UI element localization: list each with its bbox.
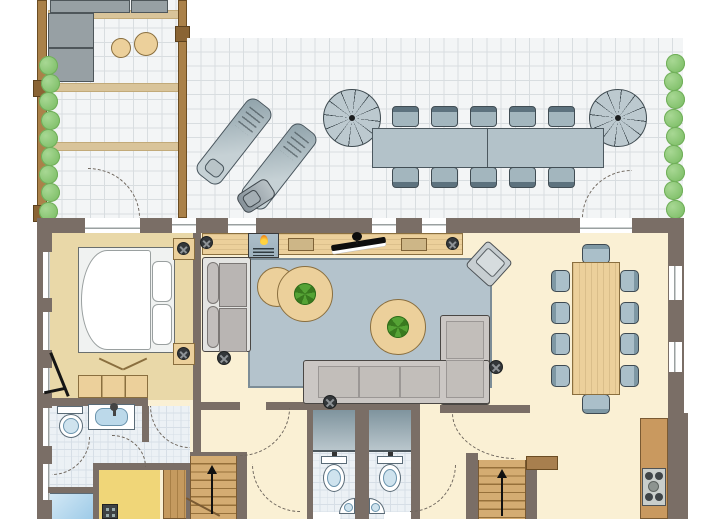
terrace-chair [431,167,458,188]
dining-chairs-left [551,270,570,400]
toilet-bowl-inner [327,469,341,487]
tv-mount-stem [356,239,358,244]
wc-door-opening [313,512,340,519]
plank-closet [163,467,188,519]
toilet-bowl-inner [383,469,397,487]
window [228,218,256,233]
bush-icon [664,145,683,164]
flame-icon [260,235,268,245]
stair-wall [237,452,247,519]
burner-icon [655,472,663,480]
mattress [81,250,151,350]
window [172,218,196,233]
sofa-cushion [400,366,440,398]
bush-icon [39,92,58,111]
door-swing-arc [582,170,632,218]
fireplace [248,233,279,258]
bush-icon [41,74,60,93]
wall-stub [37,500,52,519]
stair-wall [526,470,537,519]
toilet-tank [321,456,347,464]
lamp-icon [446,237,459,250]
hob [642,468,666,506]
lamp-icon [177,347,190,360]
speaker [288,238,314,251]
up-arrow-icon [211,468,213,514]
outdoor-dining-table [372,128,488,168]
terrace-chair [548,167,575,188]
wardrobe [78,375,148,398]
wall-stub [37,446,52,464]
bush-icon [41,111,60,130]
terrace-chairs-bottom [392,167,592,188]
floor-lamp-icon [323,395,337,409]
stair-cupboard [526,456,558,470]
bush-icon [41,147,60,166]
bush-icon [666,127,685,146]
window [372,218,396,233]
bush-icon [664,72,683,91]
exterior-wall [196,218,228,233]
door-swing-arc [252,464,300,512]
terrace-chair [392,106,419,127]
terrace-chair [431,106,458,127]
hall-wall [193,402,240,410]
door-swing-arc [150,406,190,448]
sofa-cushion [318,366,359,398]
boiler [102,504,118,519]
terrace-chair [509,106,536,127]
door-swing-arc [410,464,456,512]
lamp-icon [177,242,190,255]
floor-lamp-icon [489,360,503,374]
up-arrow-icon [501,472,503,516]
sink-basin [344,503,353,512]
outdoor-corner-sofa-back [50,0,130,13]
shower [369,410,411,452]
terrace-chair [392,167,419,188]
terrace-chair [470,106,497,127]
floor-plan [0,0,713,519]
terrace-chairs-top [392,106,592,127]
faucet-spout [113,410,116,416]
wc-door-opening [384,512,411,519]
dining-table [572,262,620,395]
bush-icon [39,129,58,148]
bush-icon [666,163,685,182]
wall-stub [37,298,52,312]
window [43,312,50,350]
pergola-beam [48,142,183,151]
sofa-seat-cushion [219,308,247,352]
pillow [152,261,172,302]
lamp-icon [200,236,213,249]
exterior-wall [396,218,422,233]
window [43,252,50,298]
terrace-door-opening [580,218,632,233]
terrace-door-opening [85,218,140,233]
shower-tub [50,493,93,519]
sofa-back-cushion [207,262,219,304]
burner-icon [648,481,659,492]
bush-icon [664,109,683,128]
terrace-chair [470,167,497,188]
window [669,266,682,300]
stair-wall [466,453,478,519]
door-swing-arc [240,408,290,456]
bush-icon [41,183,60,202]
dining-chair [551,302,570,324]
bush-icon [664,181,683,200]
flush-button [332,452,337,456]
sofa-cushion [446,360,484,398]
bush-icon [666,90,685,109]
plant-icon [294,283,316,305]
door-swing-arc [112,435,146,467]
pergola-beam [48,83,183,92]
exterior-wall [668,413,688,519]
door-swing-arc [88,168,140,218]
plant-icon [387,316,409,338]
window [43,464,50,500]
exterior-wall [256,218,372,233]
exterior-wall [668,218,684,413]
pillow [152,304,172,345]
terrace-chair [548,106,575,127]
dining-chair [551,270,570,292]
bush-icon [39,56,58,75]
fireplace-grate [253,248,274,256]
pouf [111,38,131,58]
pouf [134,32,158,56]
dining-chair [582,394,610,414]
sofa-cushion [359,366,400,398]
burner-icon [645,472,653,480]
outdoor-corner-sofa-seat [48,13,94,48]
window [422,218,446,233]
wall-stub [37,218,52,252]
shower [313,410,355,452]
bush-icon [39,165,58,184]
toilet-tank [57,406,83,414]
dining-chairs-right [620,270,639,400]
sink-basin [371,503,380,512]
hall-wall [440,405,530,413]
dining-chair [551,365,570,387]
bathroom-wall [48,487,93,493]
toilet-bowl-inner [63,418,79,434]
door-swing-arc [52,437,90,475]
window [669,342,682,372]
speaker [401,238,427,251]
dining-chair [620,333,639,355]
utility-wall [93,470,99,519]
terrace-chair [509,167,536,188]
bush-icon [666,200,685,219]
dining-chair [582,244,610,264]
window [43,408,50,446]
dining-chair [620,270,639,292]
burner-icon [655,493,663,501]
exterior-wall [140,218,172,233]
flush-button [388,452,393,456]
exterior-wall [446,218,580,233]
hedge-left [39,56,61,222]
sofa-cushion [446,321,484,359]
toilet-tank [377,456,403,464]
sofa-back-cushion [207,306,219,348]
sofa-seat-cushion [219,263,247,307]
door-swing-arc [452,413,516,459]
dining-chair [551,333,570,355]
burner-icon [645,493,653,501]
outdoor-corner-sofa-back [131,0,168,13]
dining-chair [620,365,639,387]
hedge-right [664,54,686,220]
floor-lamp-icon [217,351,231,365]
outdoor-dining-table [487,128,604,168]
bush-icon [666,54,685,73]
dining-chair [620,302,639,324]
